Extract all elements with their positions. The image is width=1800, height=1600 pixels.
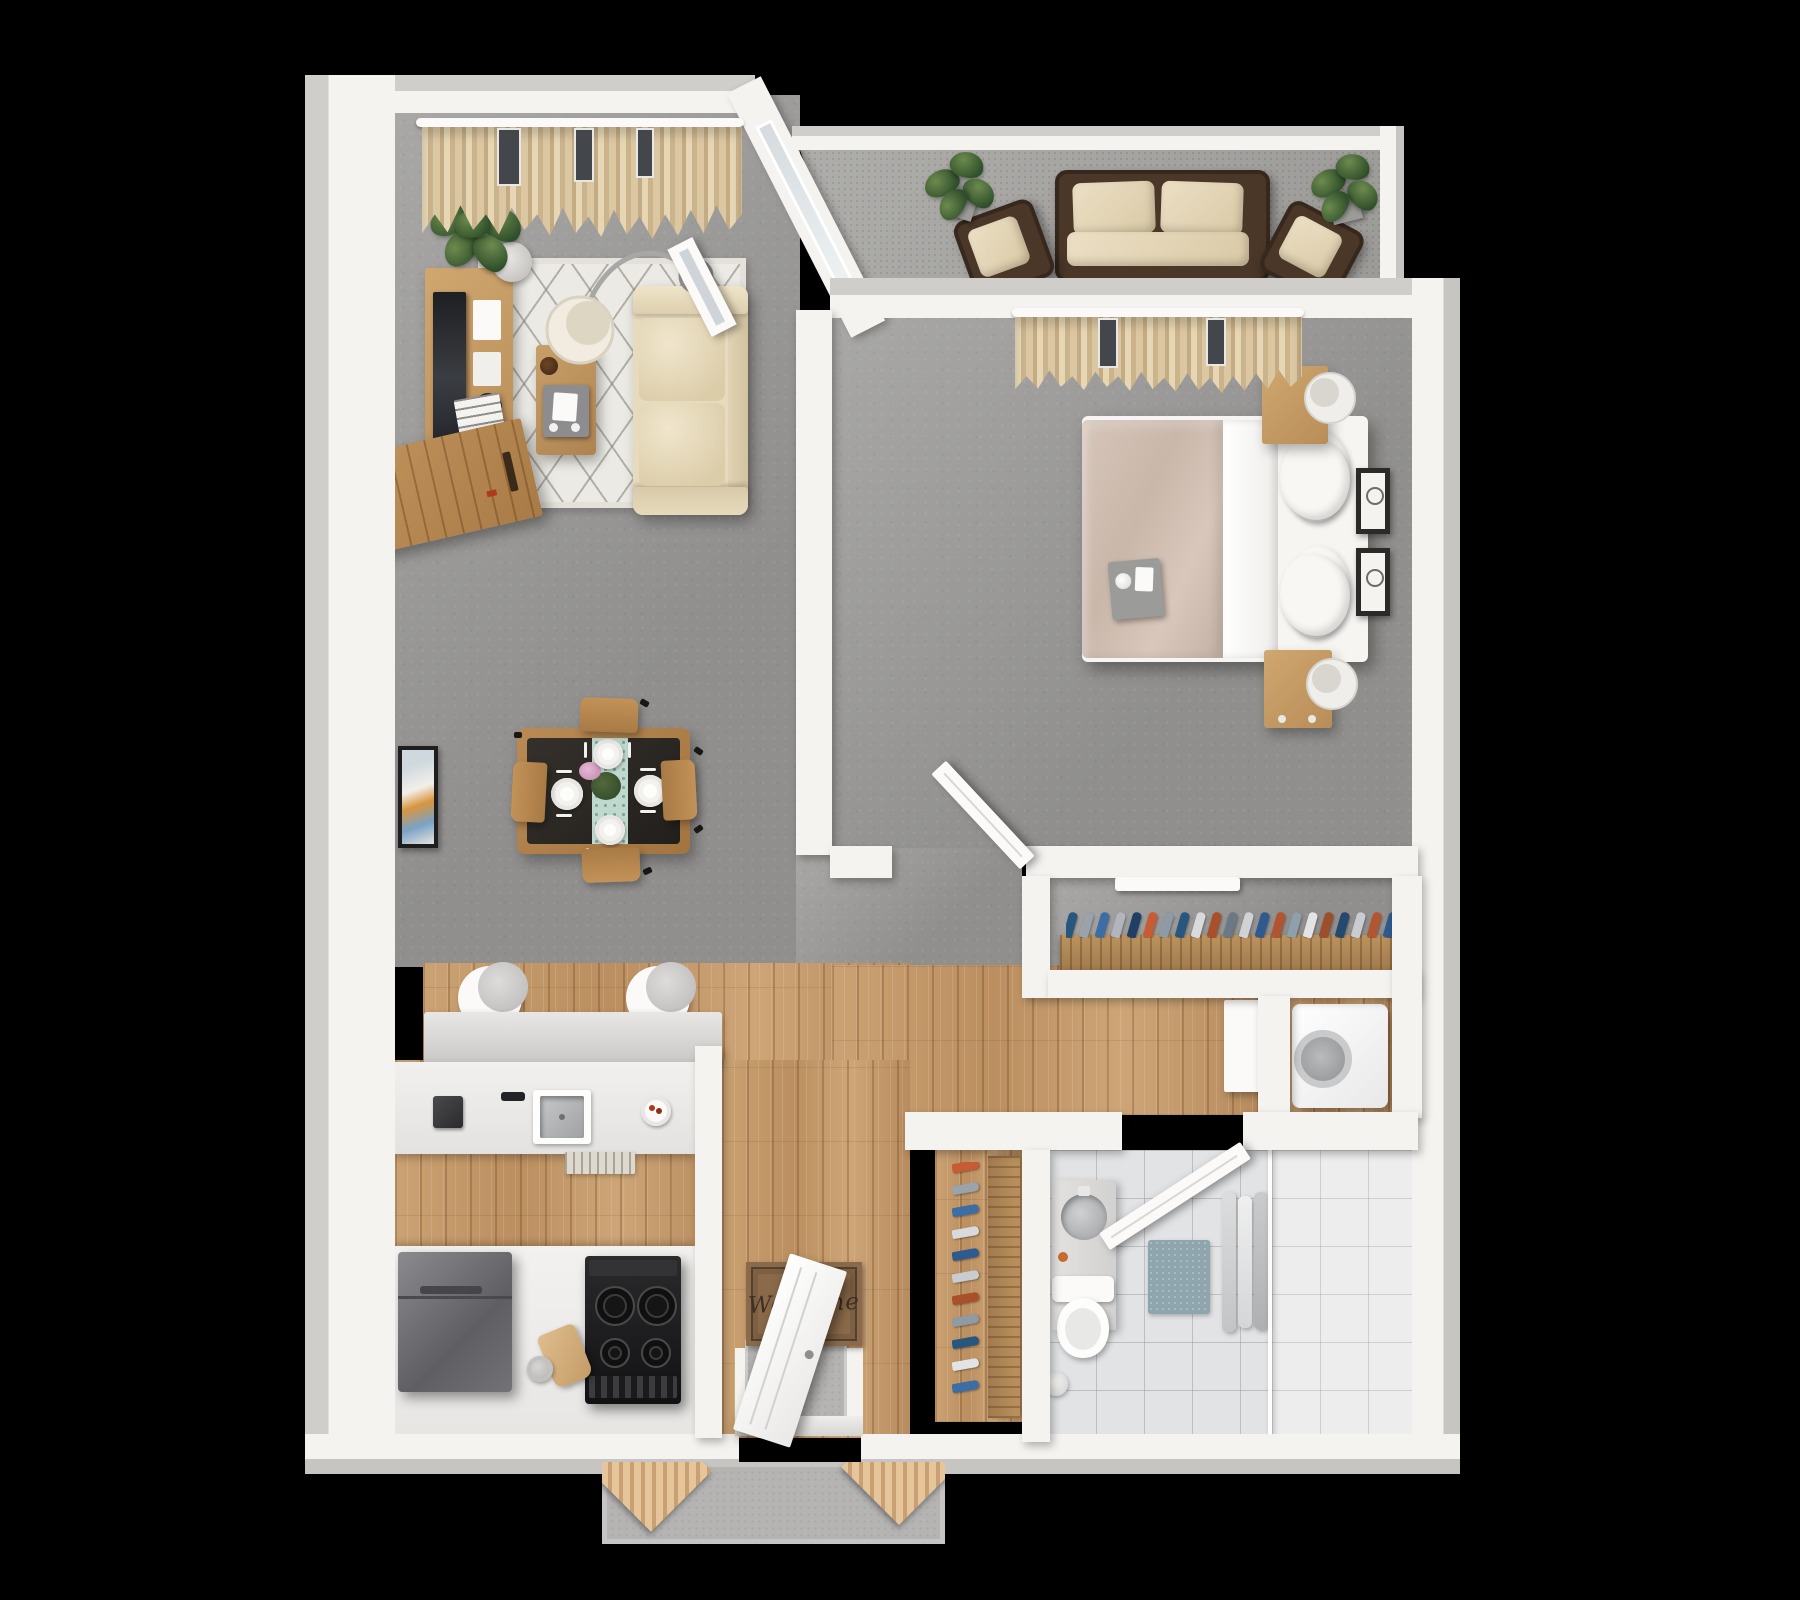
window-glass-gap <box>1098 318 1118 368</box>
wall-bedroom-bottom <box>1026 846 1418 878</box>
outdoor-sofa <box>1055 170 1270 282</box>
clothing-item <box>1127 911 1143 938</box>
screenshot-root: { "scene": { "description": "3D top-down… <box>0 0 1800 1600</box>
nightstand-knob <box>1278 715 1286 723</box>
console-shelf-item <box>473 300 501 340</box>
coat-hanging-clothes <box>952 1162 990 1414</box>
clothing-item <box>1143 911 1159 938</box>
clothing-item <box>1335 911 1351 938</box>
coat-closet-rod <box>988 1156 1020 1418</box>
outdoor-sofa-pillow <box>1072 181 1156 236</box>
cutlery <box>556 770 572 773</box>
clothing-item <box>1271 911 1287 938</box>
towel <box>1222 1192 1236 1332</box>
cutlery <box>640 768 656 771</box>
sofa-armrest-bottom <box>633 487 748 515</box>
wall-left <box>305 75 395 1474</box>
wall-bedroom-left <box>796 310 832 855</box>
bedroom-wall-art <box>1356 548 1390 616</box>
cutlery <box>584 742 587 758</box>
dining-chair-north <box>579 697 638 733</box>
fridge-seam <box>398 1296 512 1299</box>
art-motif <box>1366 487 1384 505</box>
table-lamp <box>1306 658 1358 710</box>
door-knob <box>803 1349 814 1360</box>
window-glass-gap <box>497 128 521 186</box>
toilet-seat <box>1065 1308 1101 1350</box>
closet-rod <box>1060 935 1392 971</box>
clothing-item <box>1255 911 1271 938</box>
clothing-item <box>1351 911 1367 938</box>
fruit-bowl <box>641 1096 671 1126</box>
wall-bedroom-bottom-stub <box>830 846 892 878</box>
clothing-item <box>952 1380 980 1394</box>
dining-wall-art <box>398 746 438 848</box>
towel <box>1238 1196 1252 1328</box>
breakfast-tray <box>1108 558 1165 620</box>
wall-bathroom-top-left <box>905 1112 1122 1150</box>
stove-burner <box>600 1338 630 1368</box>
tray-mug <box>1115 572 1132 589</box>
stove <box>585 1256 681 1404</box>
clothing-item <box>952 1226 980 1240</box>
clothing-item <box>1239 911 1255 938</box>
toaster <box>433 1096 463 1128</box>
kitchen-sink-counter <box>395 1062 695 1154</box>
cutlery <box>640 810 656 813</box>
clothing-item <box>952 1204 980 1218</box>
towel <box>1254 1192 1268 1330</box>
wall-balcony-top <box>792 126 1404 150</box>
clothing-item <box>1175 911 1191 938</box>
toilet <box>1052 1276 1114 1362</box>
clothing-item <box>952 1336 980 1350</box>
refrigerator <box>398 1252 512 1392</box>
console-shelf-item <box>473 352 501 386</box>
wall-laundry-nook-left <box>1258 996 1290 1118</box>
hanging-clothes <box>1066 908 1392 938</box>
potted-plant-right <box>1306 150 1382 230</box>
nightstand-knob <box>1308 715 1316 723</box>
bedroom-wall-art <box>1356 468 1390 534</box>
kitchen-sink <box>533 1090 591 1144</box>
breakfast-bar <box>424 1012 722 1064</box>
cabinet-handle <box>502 451 519 492</box>
clothing-item <box>952 1358 980 1372</box>
clothing-item <box>1079 911 1095 938</box>
clothing-item <box>1383 911 1392 938</box>
stool-seat <box>646 962 696 1012</box>
soap-dish <box>1058 1252 1068 1262</box>
window-glass-gap <box>636 128 654 178</box>
clothing-item <box>1367 911 1383 938</box>
cutlery <box>556 814 572 817</box>
closet-sliding-track <box>1115 877 1240 891</box>
place-setting <box>551 778 583 810</box>
place-setting <box>593 739 623 769</box>
dining-chair-south <box>581 847 640 883</box>
clothing-item <box>1287 911 1303 938</box>
utensil-jar <box>527 1356 553 1382</box>
shower-floor <box>1272 1150 1412 1436</box>
bath-mat <box>1148 1240 1210 1314</box>
patio-stoop <box>602 1462 945 1544</box>
table-lamp <box>1304 372 1356 424</box>
outdoor-sofa-seat <box>1067 232 1249 266</box>
wall-bottom-right <box>861 1434 1460 1474</box>
art-motif <box>1366 569 1384 587</box>
tray-card <box>552 392 578 422</box>
serving-tray <box>543 385 589 437</box>
sofa-cushion <box>639 403 725 486</box>
wall-closet-front <box>1048 970 1418 998</box>
cutlery <box>628 742 631 758</box>
clothing-item <box>952 1292 980 1306</box>
fridge-handle <box>420 1286 482 1294</box>
curtain-rail <box>416 118 744 127</box>
clothing-item <box>952 1270 980 1284</box>
chair-foot <box>514 732 522 738</box>
clothing-item <box>1319 911 1335 938</box>
floor-plan: Welcome <box>0 0 1800 1600</box>
clothing-item <box>1066 911 1078 938</box>
clothing-item <box>952 1182 980 1196</box>
wall-closet-right-filler <box>1392 876 1422 1118</box>
stool-seat <box>478 962 528 1012</box>
window-glass-gap <box>1206 318 1226 366</box>
clothing-item <box>1095 911 1111 938</box>
clothing-item <box>1207 911 1223 938</box>
outdoor-sofa-pillow <box>1160 181 1244 236</box>
window-glass-gap <box>574 128 594 182</box>
clothing-item <box>1191 911 1207 938</box>
stove-grill <box>589 1376 677 1398</box>
wall-bathroom-top-right <box>1243 1112 1418 1150</box>
tray-cup <box>571 423 580 432</box>
clothing-item <box>1223 911 1239 938</box>
wall-closet-left <box>1022 876 1050 998</box>
sink-faucet <box>1078 1186 1090 1196</box>
duvet <box>1082 420 1223 658</box>
dining-chair-east <box>660 759 697 821</box>
kitchen-runner-rug <box>565 1152 635 1174</box>
tray-card <box>1135 567 1154 592</box>
stove-control-panel <box>589 1260 677 1276</box>
wall-closet-bathroom-divider <box>1022 1150 1050 1442</box>
patio-wood-chair-right <box>841 1462 945 1525</box>
tray-cup <box>549 423 558 432</box>
dining-chair-west <box>510 761 547 823</box>
faucet <box>501 1092 525 1101</box>
shower-glass-partition <box>1268 1150 1272 1436</box>
clothing-item <box>1303 911 1319 938</box>
bedroom-curtain-rail <box>1012 308 1304 317</box>
stove-burner <box>641 1338 671 1368</box>
place-setting <box>595 815 625 845</box>
clothing-item <box>1111 911 1127 938</box>
clothing-item <box>952 1314 980 1328</box>
clothing-item <box>952 1162 980 1173</box>
potted-plant-left <box>922 148 998 228</box>
washer <box>1292 1004 1388 1108</box>
cabinet-accent <box>486 489 497 497</box>
wall-balcony-right <box>1380 126 1404 296</box>
stove-burner <box>595 1286 635 1326</box>
patio-wood-chair-left <box>602 1462 712 1532</box>
washer-door-ring <box>1294 1030 1352 1088</box>
sink-drain <box>559 1114 565 1120</box>
stove-burner <box>637 1286 677 1326</box>
towels <box>1222 1192 1270 1332</box>
bed-sheet-fold <box>1223 420 1278 658</box>
toilet-bowl <box>1057 1298 1109 1358</box>
clothing-item <box>952 1248 980 1262</box>
wall-kitchen-right <box>695 1046 722 1438</box>
clothing-item <box>1159 911 1175 938</box>
